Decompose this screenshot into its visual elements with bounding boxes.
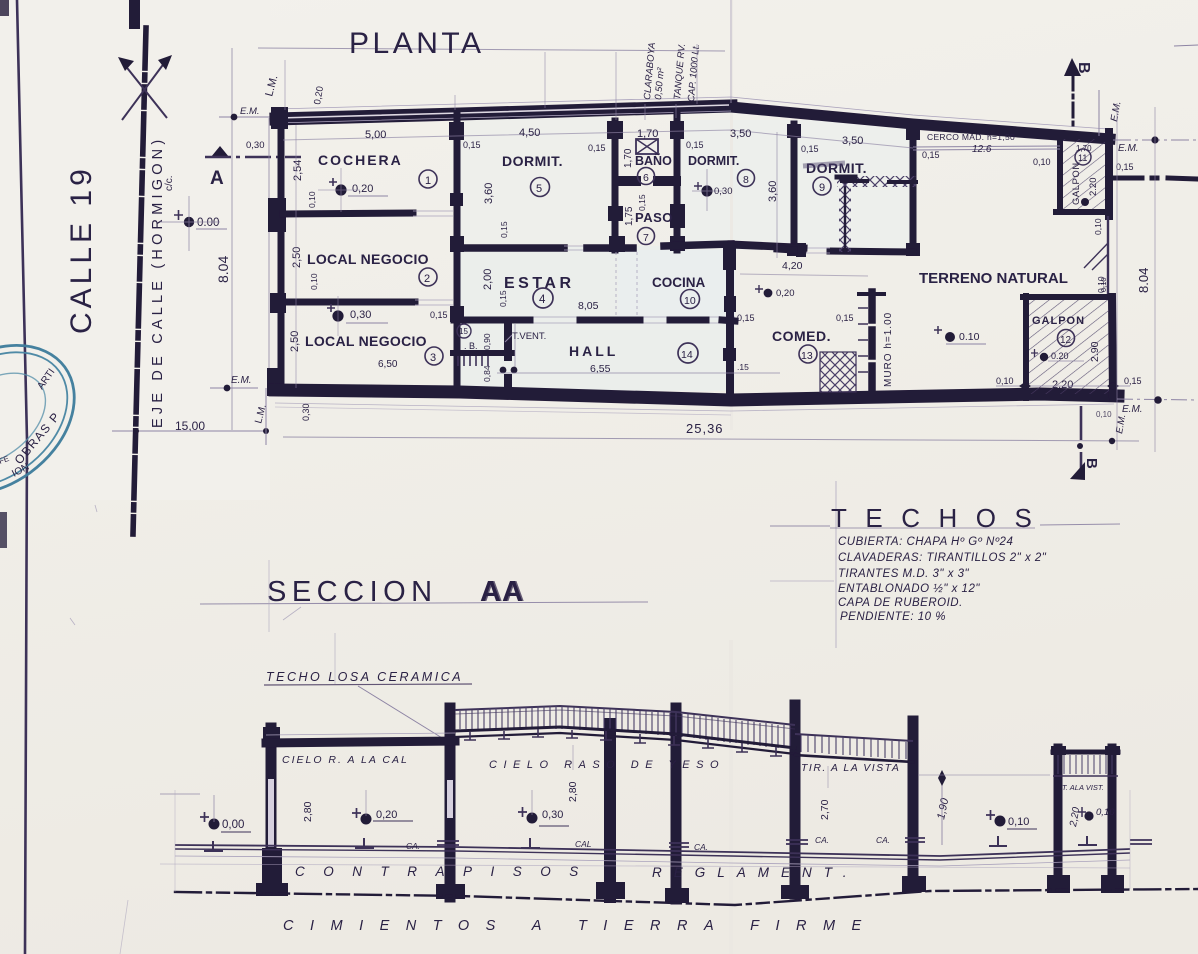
svg-text:2,80: 2,80 (567, 781, 579, 802)
svg-text:0,20: 0,20 (776, 288, 795, 299)
svg-text:0,15: 0,15 (801, 144, 819, 154)
svg-text:ENTABLONADO ½" x 12": ENTABLONADO ½" x 12" (838, 583, 980, 595)
svg-text:. B.: . B. (464, 341, 478, 351)
svg-text:6,50: 6,50 (378, 359, 398, 370)
svg-text:11: 11 (1078, 153, 1087, 163)
svg-text:0,10: 0,10 (307, 191, 317, 208)
svg-text:TECHO LOSA CERAMICA: TECHO LOSA CERAMICA (266, 670, 463, 684)
svg-text:0,15: 0,15 (686, 140, 704, 150)
svg-text:8.04: 8.04 (1136, 268, 1151, 293)
svg-text:CAPA DE RUBEROID.: CAPA DE RUBEROID. (838, 597, 963, 609)
svg-text:REGLAMENT.: REGLAMENT. (652, 865, 859, 880)
svg-text:0,30: 0,30 (301, 403, 311, 421)
svg-text:0,10: 0,10 (1096, 410, 1112, 419)
svg-text:E.M.: E.M. (1122, 404, 1143, 415)
svg-text:.15: .15 (737, 362, 749, 372)
svg-text:0,30: 0,30 (350, 309, 371, 321)
svg-text:LOCAL NEGOCIO: LOCAL NEGOCIO (305, 333, 427, 349)
svg-text:1,75: 1,75 (624, 206, 635, 226)
svg-text:8.04: 8.04 (215, 256, 231, 283)
svg-text:CA.: CA. (694, 842, 708, 852)
svg-text:0,30: 0,30 (542, 809, 563, 821)
svg-text:0,10: 0,10 (309, 273, 319, 290)
svg-text:2,50: 2,50 (289, 331, 301, 352)
svg-text:E.M.: E.M. (240, 106, 260, 117)
svg-text:3: 3 (430, 352, 436, 364)
svg-text:0,15: 0,15 (1116, 162, 1134, 172)
svg-text:0,15: 0,15 (588, 143, 606, 153)
svg-text:4,20: 4,20 (782, 260, 803, 272)
svg-text:2,80: 2,80 (302, 801, 314, 822)
svg-text:0.20: 0.20 (1051, 351, 1069, 361)
svg-text:0,10: 0,10 (1033, 157, 1051, 167)
svg-text:E.M.: E.M. (231, 375, 252, 386)
svg-text:4,50: 4,50 (519, 127, 540, 139)
svg-text:0,15: 0,15 (499, 221, 509, 238)
svg-text:LOCAL NEGOCIO: LOCAL NEGOCIO (307, 251, 429, 267)
svg-text:2.90: 2.90 (1089, 341, 1101, 362)
svg-text:5,00: 5,00 (365, 129, 386, 141)
svg-text:0,15: 0,15 (836, 313, 854, 323)
svg-text:3,60: 3,60 (767, 181, 779, 202)
svg-text:PLANTA: PLANTA (349, 27, 484, 60)
svg-text:CALLE 19: CALLE 19 (65, 165, 98, 334)
svg-text:GALPON: GALPON (1071, 162, 1082, 205)
svg-text:25,36: 25,36 (686, 421, 724, 436)
svg-text:15: 15 (459, 327, 468, 336)
svg-text:0.10: 0.10 (959, 331, 980, 343)
svg-text:A: A (210, 168, 224, 189)
svg-text:3,50: 3,50 (842, 135, 863, 147)
svg-text:2: 2 (424, 273, 430, 285)
svg-text:3,50: 3,50 (730, 128, 751, 140)
svg-text:0,15: 0,15 (498, 290, 508, 307)
svg-text:0,10: 0,10 (1096, 276, 1106, 293)
svg-text:5: 5 (536, 183, 542, 195)
svg-text:14: 14 (681, 349, 693, 361)
svg-text:1: 1 (425, 175, 431, 187)
svg-text:8,05: 8,05 (578, 300, 599, 312)
svg-text:CIELO R. A LA CAL: CIELO R. A LA CAL (282, 754, 409, 766)
svg-text:TIRANTES M.D. 3" x 3": TIRANTES M.D. 3" x 3" (838, 568, 970, 580)
svg-text:CLAVADERAS: TIRANTILLOS 2" x 2: CLAVADERAS: TIRANTILLOS 2" x 2" (838, 552, 1047, 564)
svg-text:4: 4 (539, 294, 546, 306)
svg-text:PASO: PASO (635, 210, 673, 225)
svg-text:0,20: 0,20 (376, 809, 397, 821)
svg-text:2.20: 2.20 (1088, 178, 1099, 197)
svg-text:13: 13 (801, 350, 813, 362)
svg-text:0,30: 0,30 (714, 186, 733, 197)
svg-text:CA.: CA. (815, 835, 829, 845)
svg-text:0,84: 0,84 (482, 365, 492, 382)
svg-text:CA.: CA. (406, 841, 420, 851)
svg-text:0,10: 0,10 (1096, 807, 1115, 818)
svg-text:2,00: 2,00 (482, 269, 494, 290)
svg-text:0,15: 0,15 (637, 194, 647, 211)
svg-text:T.VENT.: T.VENT. (512, 331, 546, 342)
svg-text:2,50: 2,50 (291, 247, 303, 268)
svg-text:7: 7 (643, 232, 649, 244)
svg-text:0,10: 0,10 (1008, 816, 1029, 828)
svg-text:PENDIENTE: 10 %: PENDIENTE: 10 % (840, 611, 946, 623)
svg-text:CIMIENTOS A TIERRA FIRME: CIMIENTOS A TIERRA FIRME (283, 918, 878, 934)
svg-text:HALL: HALL (569, 343, 618, 359)
svg-text:TERRENO NATURAL: TERRENO NATURAL (919, 270, 1068, 287)
svg-text:6: 6 (643, 172, 649, 184)
svg-text:0.00: 0.00 (197, 217, 219, 229)
svg-text:0,15: 0,15 (463, 140, 481, 150)
svg-text:GALPON: GALPON (1032, 315, 1085, 327)
svg-text:CONTRAPISOS: CONTRAPISOS (295, 864, 597, 879)
svg-text:DORMIT.: DORMIT. (688, 154, 739, 168)
svg-text:0,10: 0,10 (1093, 218, 1103, 235)
svg-text:0,90: 0,90 (482, 333, 492, 350)
svg-text:2,54: 2,54 (292, 160, 304, 181)
svg-text:1,70: 1,70 (1076, 144, 1092, 153)
svg-text:2,70: 2,70 (819, 799, 831, 820)
svg-text:0,15: 0,15 (737, 313, 755, 323)
svg-text:CAL: CAL (575, 839, 592, 849)
svg-text:0,10: 0,10 (996, 376, 1014, 386)
svg-text:COMED.: COMED. (772, 328, 831, 344)
svg-text:3,60: 3,60 (483, 183, 495, 204)
svg-text:12.6: 12.6 (972, 144, 992, 155)
svg-text:CIELO RASO DE YESO: CIELO RASO DE YESO (489, 759, 725, 771)
svg-text:CERCO MAD. h=1,50: CERCO MAD. h=1,50 (927, 132, 1015, 142)
svg-text:B: B (1083, 458, 1100, 469)
svg-text:TIR. A LA VISTA: TIR. A LA VISTA (801, 762, 900, 774)
svg-text:0,15: 0,15 (430, 310, 448, 320)
svg-text:T. ALA VIST.: T. ALA VIST. (1062, 783, 1104, 792)
svg-text:COCHERA: COCHERA (318, 152, 403, 168)
svg-text:0,15: 0,15 (922, 150, 940, 160)
svg-text:8: 8 (743, 174, 749, 186)
svg-text:DORMIT.: DORMIT. (502, 153, 563, 169)
svg-text:10: 10 (684, 295, 696, 307)
svg-text:1,70: 1,70 (637, 128, 658, 140)
svg-text:COCINA: COCINA (652, 275, 705, 290)
svg-text:c/c.: c/c. (164, 175, 175, 191)
svg-text:B: B (1075, 62, 1092, 74)
svg-text:1,70: 1,70 (623, 148, 634, 168)
svg-text:12: 12 (1060, 335, 1072, 346)
svg-text:CUBIERTA: CHAPA Hº Gº Nº24: CUBIERTA: CHAPA Hº Gº Nº24 (838, 536, 1013, 548)
svg-text:E.M.: E.M. (1118, 143, 1139, 154)
svg-text:2.20: 2.20 (1052, 379, 1073, 391)
svg-text:CA.: CA. (876, 835, 890, 845)
svg-text:BAÑO: BAÑO (635, 153, 672, 168)
svg-text:0,20: 0,20 (352, 183, 373, 195)
svg-text:9: 9 (819, 182, 825, 194)
svg-text:MURO h=1.00: MURO h=1.00 (883, 312, 894, 387)
svg-text:0,15: 0,15 (1124, 376, 1142, 386)
svg-text:0,00: 0,00 (222, 819, 244, 831)
svg-text:0,30: 0,30 (246, 140, 265, 151)
